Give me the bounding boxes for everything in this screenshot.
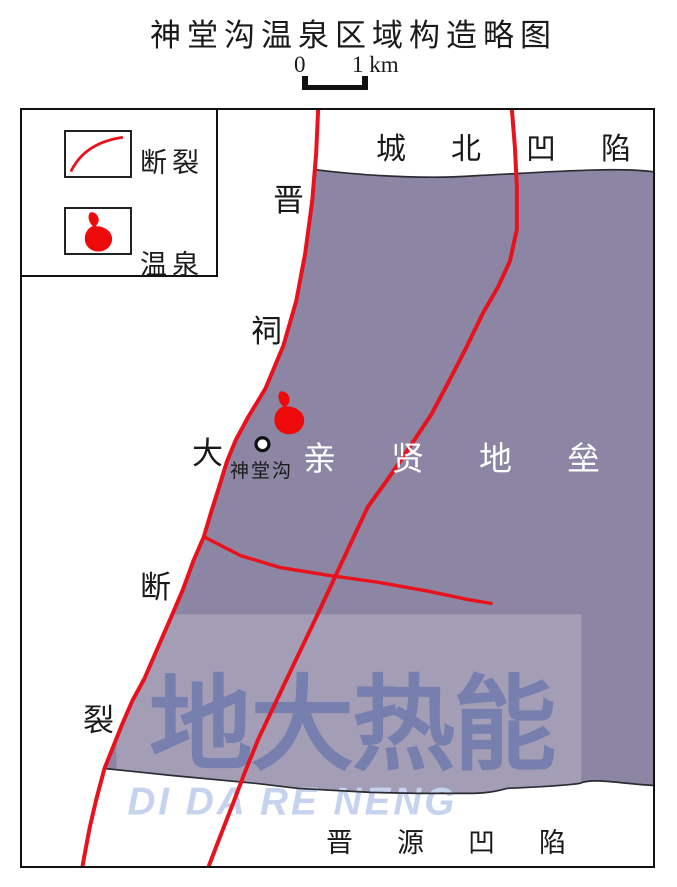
legend-spring-label: 温泉 — [140, 243, 204, 282]
fault-name-char-1: 晋 — [273, 175, 304, 220]
legend-fault-label: 断裂 — [140, 141, 204, 180]
watermark-cjk-text: 地大热能 — [149, 667, 555, 783]
legend: 温泉 断裂 — [20, 108, 218, 277]
fault-name-char-4: 断 — [140, 562, 171, 607]
figure-page: 神堂沟温泉区域构造略图 0 1 km 地大热能 DI DA RE NENG — [0, 0, 677, 887]
fault-name-char-5: 裂 — [83, 695, 114, 740]
legend-fault-swatch — [64, 130, 132, 178]
site-marker-circle — [256, 438, 269, 451]
label-jinyuan-depression: 晋源凹陷 — [326, 821, 610, 860]
scale-start-label: 0 — [294, 52, 306, 78]
label-qinxian-horst: 亲贤地垒 — [303, 432, 655, 480]
scale-end-label: 1 km — [352, 52, 399, 78]
legend-spring-swatch — [64, 207, 132, 255]
figure-title: 神堂沟温泉区域构造略图 — [0, 10, 677, 55]
fault-name-char-3: 大 — [192, 428, 223, 473]
scale-bar — [302, 85, 368, 90]
label-shentanggou-site: 神堂沟 — [230, 456, 293, 483]
fault-name-char-2: 祠 — [251, 306, 282, 351]
fault-line-icon — [66, 132, 130, 176]
watermark-latin-text: DI DA RE NENG — [127, 780, 457, 823]
hot-spring-icon — [83, 211, 113, 253]
label-chengbei-depression: 城北凹陷 — [376, 124, 676, 168]
